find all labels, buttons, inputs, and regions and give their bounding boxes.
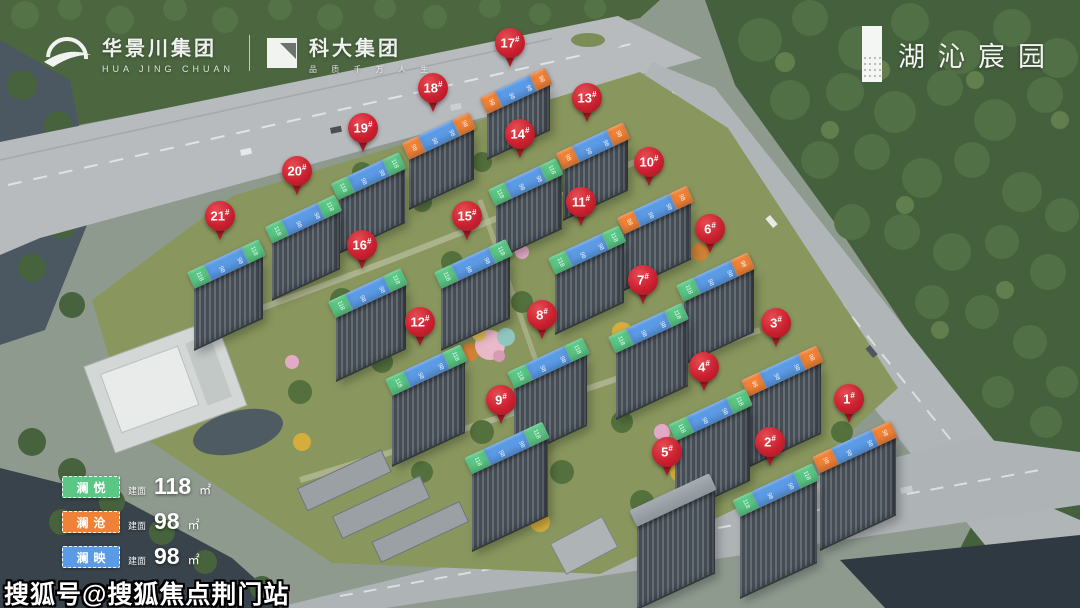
roof-area-label: 98 [561,149,574,168]
roof-area-label: 98 [442,129,456,140]
roof-area-label: 98 [612,125,625,144]
roof-area-label: 98 [306,212,320,223]
roof-area-label: 118 [246,242,259,262]
keda-name: 科大集团 [309,32,434,61]
huajingchuan-swirl-icon [42,28,92,78]
building-number: 1# [843,392,855,405]
roof-area-label: 118 [270,222,283,241]
roof-area-label: 98 [430,363,444,374]
roof-area-label: 118 [682,280,695,300]
unit-type-legend: 澜悦 建面 118 ㎡ 澜沧 建面 98 ㎡ 澜映 建面 98 ㎡ [62,475,211,580]
number-suffix: # [668,444,672,453]
legend-area-unit: ㎡ [188,516,200,533]
roof-area-label: 98 [491,450,505,461]
roof-area-label: 98 [353,295,367,306]
roof-area-label: 98 [288,220,302,231]
legend-area-unit: ㎡ [188,551,200,568]
roof-area-label: 118 [513,366,527,387]
watermark-text: 搜狐号@搜狐焦点荆门站 [4,575,289,608]
pin-head: 19# [348,113,378,143]
legend-area-value: 98 [154,510,180,533]
roof-area-label: 118 [439,267,452,287]
number-suffix: # [543,307,547,316]
roof-area-label: 98 [534,70,547,88]
legend-row-lancang: 澜沧 建面 98 ㎡ [62,510,211,534]
number-suffix: # [225,208,229,217]
roof-area-label: 98 [512,440,526,451]
project-building-icon [860,26,886,82]
roof-area-label: 98 [552,356,566,367]
roof-area-label: 98 [372,286,386,297]
building-number: 7# [637,273,649,286]
project-name: 湖沁宸园 [898,35,1058,74]
legend-row-lanyue: 澜悦 建面 118 ㎡ [62,475,211,499]
pin-head: 5# [652,437,682,467]
project-logo: 湖沁宸园 [860,26,1058,82]
building-number: 5# [661,445,673,458]
roof-area-label: 118 [732,391,746,412]
pin-head: 7# [628,265,658,295]
number-suffix: # [425,314,429,323]
keda-logo-icon [265,36,299,70]
roof-area-label: 118 [530,424,544,445]
legend-area-label: 建面 [128,484,146,497]
logo-divider [249,35,250,71]
roof-area-label: 118 [323,197,336,216]
building-number: 12# [411,315,430,328]
roof-area-label: 118 [607,228,620,248]
building-number: 4# [698,360,710,373]
roof-area-label: 118 [334,296,348,316]
pin-head: 14# [505,119,535,149]
number-suffix: # [850,391,854,400]
number-suffix: # [644,272,648,281]
roof-area-label: 98 [596,139,610,150]
roof-area-label: 98 [714,407,728,418]
number-suffix: # [586,194,590,203]
huajingchuan-logo: 华景川集团 HUA JING CHUAN [42,28,234,78]
keda-logo: 科大集团 品 质 千 万 人 生 [265,32,434,75]
legend-badge-orange: 澜沧 [62,511,120,533]
roof-area-label: 98 [529,175,543,186]
number-suffix: # [515,35,519,44]
aerial-site-rendering: 9898989817#9898989818#9898989813#1189898… [0,0,1080,608]
pin-head: 15# [452,201,482,231]
roof-area-label: 98 [694,417,708,428]
roof-area-label: 118 [545,160,558,179]
building-number: 6# [704,222,716,235]
number-suffix: # [654,154,658,163]
roof-area-label: 98 [767,373,781,384]
roof-area-label: 98 [737,254,750,274]
roof-area-label: 98 [878,423,892,444]
roof-area-label: 118 [674,418,688,439]
pin-head: 8# [527,300,557,330]
roof-area-label: 98 [622,213,635,232]
building-number: 14# [511,127,530,140]
roof-area-label: 98 [818,450,832,471]
legend-area-label: 建面 [128,519,146,532]
pin-head: 17# [495,28,525,58]
pin-head: 21# [205,201,235,231]
roof-area-label: 98 [458,265,472,276]
roof-area-label: 118 [391,373,405,394]
pin-head: 3# [761,308,791,338]
building-number: 15# [458,209,477,222]
building-number: 20# [288,164,307,177]
roof-area-label: 98 [760,492,774,503]
huajingchuan-name: 华景川集团 [102,32,234,61]
roof-area-label: 98 [411,372,425,383]
pin-head: 1# [834,384,864,414]
building-number: 3# [770,316,782,329]
roof-area-label: 98 [533,365,547,376]
roof-area-label: 98 [425,137,439,148]
number-suffix: # [472,208,476,217]
number-suffix: # [711,221,715,230]
pin-head: 2# [755,427,785,457]
pin-head: 6# [695,214,725,244]
roof-area-label: 98 [230,257,244,268]
roof-area-label: 98 [804,347,818,368]
roof-area-label: 98 [458,115,471,134]
roof-area-label: 98 [839,449,853,460]
building-number: 2# [764,435,776,448]
roof-area-label: 98 [860,439,874,450]
roof-area-label: 118 [493,242,506,262]
roof-area-label: 98 [407,139,420,158]
pin-head: 10# [634,147,664,177]
building-number: 16# [353,238,372,251]
number-suffix: # [771,434,775,443]
roof-area-label: 118 [470,451,484,472]
roof-area-label: 118 [388,154,401,173]
pin-head: 4# [689,352,719,382]
keda-slogan: 品 质 千 万 人 生 [309,64,434,75]
roof-area-label: 98 [591,243,605,254]
number-suffix: # [777,315,781,324]
roof-area-label: 98 [211,265,225,276]
roof-area-label: 98 [477,257,491,268]
number-suffix: # [705,359,709,368]
roof-area-label: 98 [634,330,648,341]
number-suffix: # [368,120,372,129]
legend-area-label: 建面 [128,554,146,567]
pin-head: 12# [405,307,435,337]
roof-area-label: 118 [493,185,506,204]
pin-head: 9# [486,385,516,415]
building-number: 19# [354,121,373,134]
building-number: 18# [424,81,443,94]
roof-area-label: 98 [781,482,795,493]
roof-area-label: 98 [675,188,688,207]
number-suffix: # [525,126,529,135]
roof-area-label: 118 [337,179,350,198]
building-number: 8# [536,308,548,321]
number-suffix: # [592,90,596,99]
roof-area-label: 98 [640,211,654,222]
building-number: 9# [495,393,507,406]
building-number: 10# [640,155,659,168]
number-suffix: # [302,163,306,172]
roof-area-label: 118 [553,253,566,273]
legend-row-lanying: 澜映 建面 98 ㎡ [62,545,211,569]
number-suffix: # [502,392,506,401]
roof-area-label: 118 [389,270,403,290]
roof-area-label: 118 [614,331,628,351]
roof-area-label: 98 [502,92,516,103]
number-suffix: # [438,80,442,89]
pin-head: 11# [566,187,596,217]
roof-area-label: 98 [519,84,533,95]
roof-area-label: 118 [670,305,684,325]
roof-area-label: 118 [192,267,205,287]
legend-area-unit: ㎡ [199,481,211,498]
roof-area-label: 118 [570,339,584,360]
roof-area-label: 98 [653,321,667,332]
roof-area-label: 98 [572,251,586,262]
roof-area-label: 98 [355,177,369,188]
roof-area-label: 98 [720,270,734,281]
pin-head: 16# [347,230,377,260]
building-number: 17# [501,36,520,49]
roof-area-label: 98 [746,374,760,395]
building-number: 21# [211,209,230,222]
huajingchuan-sub: HUA JING CHUAN [102,64,234,74]
number-suffix: # [367,237,371,246]
roof-area-label: 98 [579,147,593,158]
roof-area-label: 98 [512,183,526,194]
roof-area-label: 98 [372,169,386,180]
roof-area-label: 98 [485,93,498,111]
roof-area-label: 98 [658,203,672,214]
roof-area-label: 98 [701,279,715,290]
roof-area-label: 98 [786,364,800,375]
roof-area-label: 118 [448,346,462,367]
legend-badge-green: 澜悦 [62,476,120,498]
pin-head: 20# [282,156,312,186]
building-number: 11# [572,195,590,208]
legend-area-value: 98 [154,545,180,568]
pin-head: 13# [572,83,602,113]
developer-logos: 华景川集团 HUA JING CHUAN 科大集团 品 质 千 万 人 生 [42,28,434,78]
legend-area-value: 118 [154,475,191,498]
legend-badge-blue: 澜映 [62,546,120,568]
building-number: 13# [578,91,597,104]
